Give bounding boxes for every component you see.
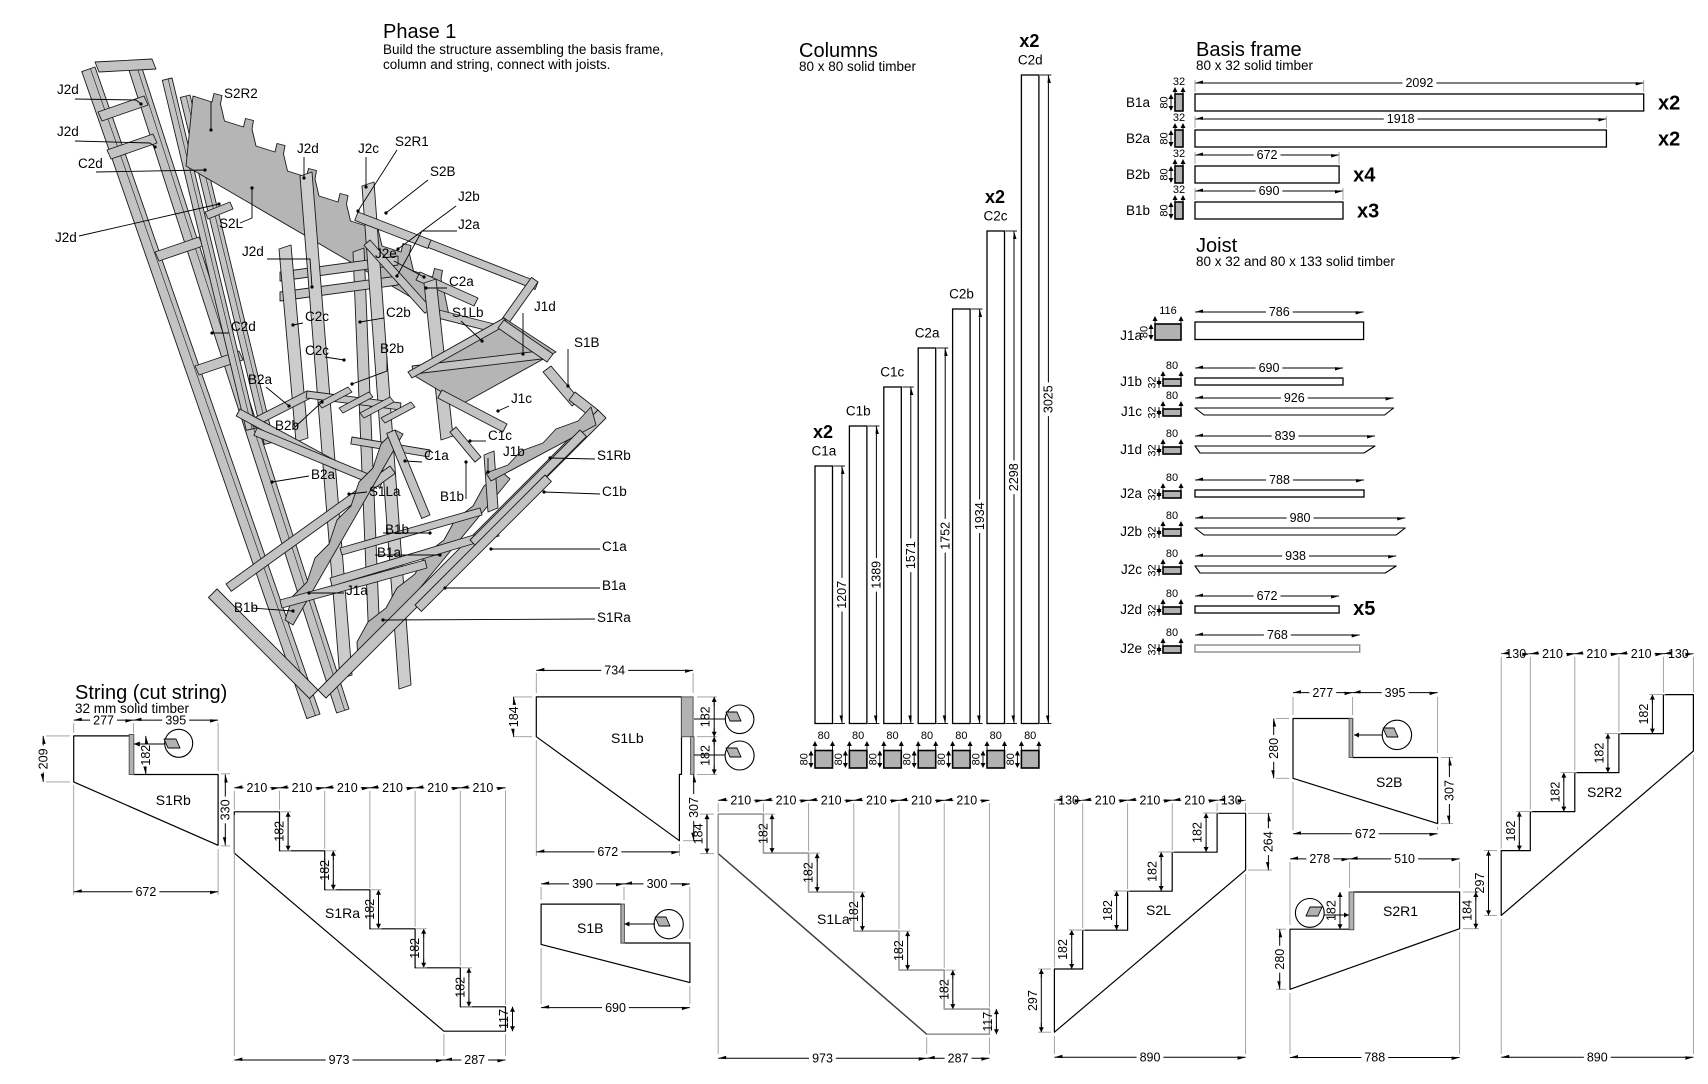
svg-text:182: 182: [1325, 900, 1339, 921]
svg-text:S1La: S1La: [369, 484, 401, 499]
svg-text:182: 182: [1504, 821, 1518, 842]
svg-text:B2b: B2b: [1126, 167, 1150, 182]
svg-text:80: 80: [1166, 627, 1178, 639]
svg-text:788: 788: [1364, 1051, 1385, 1065]
svg-text:182: 182: [1056, 939, 1070, 960]
svg-text:210: 210: [1542, 647, 1563, 661]
svg-text:C1a: C1a: [812, 444, 837, 459]
svg-text:C1c: C1c: [488, 428, 512, 443]
svg-text:182: 182: [453, 977, 467, 998]
svg-text:210: 210: [821, 794, 842, 808]
svg-text:80: 80: [1159, 204, 1171, 216]
svg-text:C2d: C2d: [231, 319, 256, 334]
svg-text:S1Rb: S1Rb: [597, 448, 631, 463]
svg-text:B1b: B1b: [440, 489, 464, 504]
svg-text:C2d: C2d: [78, 156, 103, 171]
svg-text:210: 210: [1631, 647, 1652, 661]
svg-text:973: 973: [812, 1051, 833, 1065]
svg-text:210: 210: [382, 781, 403, 795]
svg-text:J2d: J2d: [57, 82, 79, 97]
svg-text:S2L: S2L: [219, 216, 244, 231]
svg-text:182: 182: [699, 706, 713, 727]
svg-text:Phase 1: Phase 1: [383, 21, 456, 43]
svg-text:x2: x2: [1658, 93, 1680, 115]
svg-text:184: 184: [692, 823, 706, 844]
svg-text:x4: x4: [1353, 165, 1376, 187]
svg-text:3025: 3025: [1042, 385, 1056, 413]
svg-text:80: 80: [955, 730, 967, 742]
svg-text:80 x 32 solid timber: 80 x 32 solid timber: [1196, 58, 1314, 73]
svg-text:32: 32: [1147, 406, 1159, 418]
svg-text:C1c: C1c: [880, 365, 904, 380]
svg-text:S2R1: S2R1: [395, 134, 429, 149]
svg-text:80: 80: [852, 730, 864, 742]
svg-text:277: 277: [93, 713, 114, 727]
svg-text:C2c: C2c: [984, 209, 1008, 224]
svg-text:J1a: J1a: [346, 583, 368, 598]
svg-text:S1B: S1B: [574, 335, 600, 350]
svg-text:80: 80: [1166, 428, 1178, 440]
svg-text:S2R2: S2R2: [224, 86, 258, 101]
svg-text:690: 690: [605, 1001, 626, 1015]
svg-text:80: 80: [1024, 730, 1036, 742]
svg-text:32: 32: [1147, 604, 1159, 616]
svg-text:280: 280: [1273, 949, 1287, 970]
svg-text:210: 210: [1586, 647, 1607, 661]
svg-text:980: 980: [1290, 511, 1311, 525]
svg-text:768: 768: [1267, 628, 1288, 642]
svg-text:x2: x2: [1019, 31, 1039, 51]
svg-text:2092: 2092: [1405, 76, 1433, 90]
svg-text:S2L: S2L: [1146, 902, 1171, 918]
svg-text:80: 80: [971, 753, 983, 765]
svg-text:182: 182: [802, 862, 816, 883]
svg-text:B2a: B2a: [311, 467, 336, 482]
svg-text:80 x 80 solid timber: 80 x 80 solid timber: [799, 59, 917, 74]
svg-text:210: 210: [730, 794, 751, 808]
svg-text:130: 130: [1058, 793, 1079, 807]
svg-text:S1Lb: S1Lb: [611, 730, 644, 746]
svg-text:210: 210: [292, 781, 313, 795]
svg-text:210: 210: [427, 781, 448, 795]
svg-text:80: 80: [990, 730, 1002, 742]
svg-text:J2b: J2b: [1120, 524, 1142, 539]
svg-text:182: 182: [937, 979, 951, 1000]
svg-text:80: 80: [1166, 472, 1178, 484]
svg-text:S1Lb: S1Lb: [452, 305, 484, 320]
svg-text:672: 672: [597, 845, 618, 859]
svg-text:210: 210: [911, 794, 932, 808]
svg-text:80: 80: [1159, 132, 1171, 144]
svg-text:182: 182: [1101, 900, 1115, 921]
svg-text:672: 672: [135, 885, 156, 899]
svg-text:210: 210: [1184, 793, 1205, 807]
svg-text:210: 210: [1095, 793, 1116, 807]
svg-text:182: 182: [363, 899, 377, 920]
svg-text:J1d: J1d: [1120, 442, 1142, 457]
svg-text:80: 80: [799, 753, 811, 765]
svg-text:264: 264: [1262, 831, 1276, 852]
svg-text:182: 182: [408, 938, 422, 959]
svg-text:C2c: C2c: [305, 343, 329, 358]
svg-text:80: 80: [1166, 390, 1178, 402]
svg-text:x5: x5: [1353, 598, 1375, 620]
svg-text:80: 80: [1166, 548, 1178, 560]
svg-text:J2c: J2c: [358, 141, 379, 156]
svg-text:926: 926: [1284, 391, 1305, 405]
svg-text:C2b: C2b: [949, 287, 974, 302]
svg-text:J1b: J1b: [1120, 374, 1142, 389]
svg-text:C1a: C1a: [602, 539, 627, 554]
svg-text:C1b: C1b: [846, 404, 871, 419]
svg-text:80: 80: [902, 753, 914, 765]
svg-text:890: 890: [1140, 1050, 1161, 1064]
svg-text:C2a: C2a: [449, 274, 474, 289]
svg-text:B2b: B2b: [380, 341, 404, 356]
svg-text:80: 80: [818, 730, 830, 742]
svg-text:395: 395: [165, 713, 186, 727]
svg-text:788: 788: [1269, 473, 1290, 487]
svg-text:J2d: J2d: [242, 244, 264, 259]
svg-text:J2d: J2d: [297, 141, 319, 156]
svg-text:32: 32: [1147, 564, 1159, 576]
svg-text:32: 32: [1173, 148, 1185, 160]
svg-text:C1b: C1b: [602, 484, 627, 499]
svg-text:2298: 2298: [1007, 463, 1021, 491]
svg-text:J1c: J1c: [1121, 404, 1142, 419]
svg-text:184: 184: [507, 706, 521, 727]
svg-text:182: 182: [1637, 704, 1651, 725]
svg-text:1752: 1752: [938, 522, 952, 550]
svg-text:390: 390: [572, 877, 593, 891]
svg-text:C1a: C1a: [424, 448, 449, 463]
svg-text:839: 839: [1275, 429, 1296, 443]
svg-text:C2b: C2b: [386, 305, 411, 320]
svg-text:280: 280: [1267, 738, 1281, 759]
svg-text:80: 80: [921, 730, 933, 742]
svg-text:80: 80: [1166, 588, 1178, 600]
svg-text:S2R2: S2R2: [1587, 784, 1622, 800]
svg-text:210: 210: [956, 794, 977, 808]
svg-text:117: 117: [497, 1009, 511, 1029]
svg-text:80: 80: [936, 753, 948, 765]
svg-text:330: 330: [219, 799, 233, 820]
svg-text:B2a: B2a: [248, 372, 273, 387]
svg-text:116: 116: [1159, 305, 1177, 317]
svg-text:B1b: B1b: [1126, 203, 1150, 218]
svg-text:S2B: S2B: [430, 164, 456, 179]
svg-text:B1b: B1b: [385, 522, 409, 537]
svg-text:B1a: B1a: [602, 578, 627, 593]
svg-text:395: 395: [1385, 686, 1406, 700]
svg-text:510: 510: [1394, 852, 1415, 866]
svg-text:734: 734: [604, 664, 625, 678]
svg-text:x2: x2: [813, 422, 833, 442]
svg-text:80 x 32 and 80 x 133 solid tim: 80 x 32 and 80 x 133 solid timber: [1196, 254, 1395, 269]
svg-text:32: 32: [1173, 76, 1185, 88]
svg-text:973: 973: [329, 1053, 350, 1067]
svg-text:J2a: J2a: [1120, 486, 1142, 501]
svg-text:J2a: J2a: [458, 217, 480, 232]
svg-text:210: 210: [1139, 793, 1160, 807]
svg-text:182: 182: [1191, 822, 1205, 843]
svg-text:80: 80: [1159, 168, 1171, 180]
svg-text:182: 182: [1548, 782, 1562, 803]
svg-text:210: 210: [246, 781, 267, 795]
svg-text:80: 80: [886, 730, 898, 742]
svg-text:J2b: J2b: [458, 189, 480, 204]
svg-text:J1c: J1c: [511, 391, 532, 406]
svg-text:J2e: J2e: [1120, 641, 1142, 656]
svg-text:32: 32: [1147, 444, 1159, 456]
svg-text:J2e: J2e: [375, 246, 397, 261]
svg-text:32: 32: [1147, 526, 1159, 538]
svg-text:182: 182: [273, 821, 287, 842]
svg-text:1389: 1389: [870, 561, 884, 589]
svg-text:J2d: J2d: [55, 230, 77, 245]
svg-text:297: 297: [1473, 873, 1487, 894]
svg-text:80: 80: [867, 753, 879, 765]
svg-text:278: 278: [1309, 852, 1330, 866]
svg-text:32: 32: [1147, 488, 1159, 500]
svg-text:130: 130: [1221, 793, 1242, 807]
svg-text:32: 32: [1147, 643, 1159, 655]
svg-text:80: 80: [1166, 510, 1178, 522]
svg-text:32: 32: [1173, 184, 1185, 196]
svg-text:184: 184: [1460, 900, 1474, 921]
svg-text:182: 182: [318, 860, 332, 881]
svg-text:C2d: C2d: [1018, 53, 1043, 68]
svg-text:1571: 1571: [904, 541, 918, 569]
svg-text:32: 32: [1173, 112, 1185, 124]
svg-text:S2B: S2B: [1376, 774, 1402, 790]
svg-text:210: 210: [866, 794, 887, 808]
svg-text:1934: 1934: [973, 502, 987, 530]
svg-text:B2b: B2b: [275, 418, 299, 433]
svg-text:938: 938: [1285, 549, 1306, 563]
svg-text:297: 297: [1026, 990, 1040, 1011]
svg-text:210: 210: [472, 781, 493, 795]
svg-text:182: 182: [699, 745, 713, 766]
svg-text:182: 182: [1592, 743, 1606, 764]
svg-text:209: 209: [36, 748, 50, 769]
svg-text:182: 182: [757, 823, 771, 844]
svg-text:x2: x2: [1658, 129, 1680, 151]
svg-text:1918: 1918: [1387, 112, 1415, 126]
svg-text:307: 307: [1443, 780, 1457, 801]
svg-text:672: 672: [1257, 148, 1278, 162]
svg-text:80: 80: [1159, 96, 1171, 108]
svg-text:182: 182: [139, 745, 153, 766]
svg-text:J1b: J1b: [503, 444, 525, 459]
svg-text:182: 182: [1146, 861, 1160, 882]
svg-text:C2a: C2a: [915, 326, 940, 341]
svg-text:210: 210: [776, 794, 797, 808]
svg-text:B1a: B1a: [1126, 95, 1151, 110]
svg-text:J2d: J2d: [1120, 602, 1142, 617]
svg-text:277: 277: [1312, 686, 1333, 700]
svg-text:B1a: B1a: [377, 545, 402, 560]
svg-text:column and string, connect wit: column and string, connect with joists.: [383, 57, 610, 72]
svg-text:S1B: S1B: [577, 920, 603, 936]
svg-text:x2: x2: [985, 187, 1005, 207]
svg-text:B2a: B2a: [1126, 131, 1151, 146]
svg-text:x3: x3: [1357, 201, 1379, 223]
svg-text:J2d: J2d: [57, 124, 79, 139]
svg-text:C2c: C2c: [305, 309, 329, 324]
svg-text:672: 672: [1355, 827, 1376, 841]
svg-text:786: 786: [1269, 305, 1290, 319]
svg-text:J2c: J2c: [1121, 562, 1142, 577]
svg-text:J1a: J1a: [1120, 328, 1142, 343]
svg-text:80: 80: [1166, 360, 1178, 372]
svg-text:S2R1: S2R1: [1383, 903, 1418, 919]
svg-text:672: 672: [1257, 589, 1278, 603]
svg-text:300: 300: [647, 877, 668, 891]
svg-text:Build the structure assembling: Build the structure assembling the basis…: [383, 42, 664, 57]
svg-text:S1Ra: S1Ra: [325, 905, 360, 921]
svg-text:1207: 1207: [835, 581, 849, 609]
svg-text:S1Rb: S1Rb: [156, 792, 191, 808]
svg-text:307: 307: [687, 797, 701, 818]
svg-text:890: 890: [1587, 1050, 1608, 1064]
svg-text:80: 80: [1005, 753, 1017, 765]
svg-text:287: 287: [948, 1051, 969, 1065]
svg-text:80: 80: [833, 753, 845, 765]
svg-text:32: 32: [1147, 376, 1159, 388]
svg-text:690: 690: [1259, 184, 1280, 198]
svg-text:210: 210: [337, 781, 358, 795]
svg-text:S1La: S1La: [817, 911, 850, 927]
svg-text:S1Ra: S1Ra: [597, 610, 631, 625]
svg-text:130: 130: [1668, 647, 1689, 661]
svg-text:287: 287: [464, 1053, 485, 1067]
svg-text:690: 690: [1259, 361, 1280, 375]
svg-text:J1d: J1d: [534, 299, 556, 314]
svg-text:182: 182: [892, 940, 906, 961]
svg-text:B1b: B1b: [234, 600, 258, 615]
svg-text:130: 130: [1505, 647, 1526, 661]
svg-text:117: 117: [981, 1012, 995, 1032]
